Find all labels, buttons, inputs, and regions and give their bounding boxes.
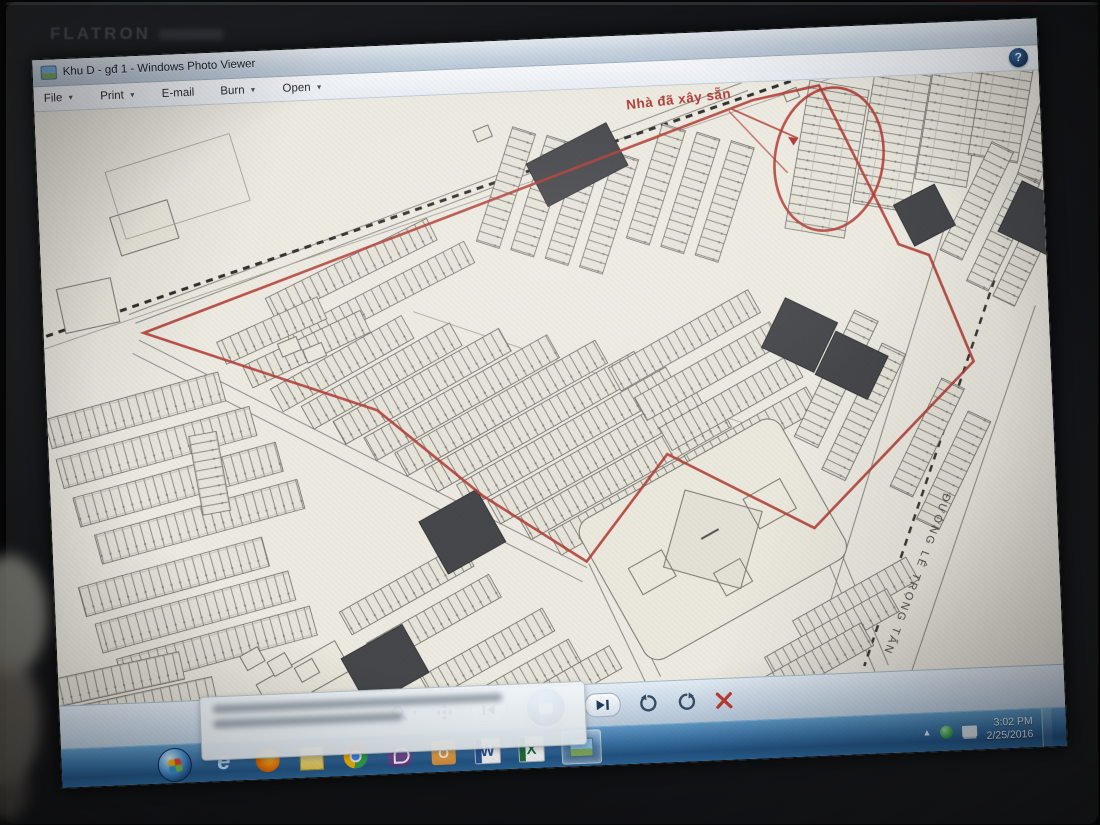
- menu-open[interactable]: Open▼: [282, 81, 323, 95]
- menu-email-label: E-mail: [162, 87, 195, 100]
- taskbar-clock[interactable]: 3:02 PM 2/25/2016: [986, 715, 1034, 743]
- blurred-text-line: [213, 712, 403, 728]
- next-icon: [595, 699, 611, 712]
- chevron-down-icon: ▼: [315, 84, 322, 91]
- menu-burn-label: Burn: [220, 84, 245, 97]
- windows-logo-icon: [167, 757, 182, 772]
- map-image: Nhà đã xây sẵn ĐƯỜNG LÊ TRỌNG TẤN: [34, 70, 1063, 706]
- delete-button[interactable]: [715, 690, 735, 710]
- help-button[interactable]: ?: [1009, 48, 1029, 68]
- clock-date: 2/25/2016: [986, 728, 1033, 743]
- chevron-down-icon: ▼: [129, 92, 136, 99]
- rotate-ccw-button[interactable]: [639, 694, 660, 713]
- planning-map: Nhà đã xây sẵn ĐƯỜNG LÊ TRỌNG TẤN: [34, 70, 1063, 706]
- bezel-sheen: [6, 2, 1098, 5]
- chevron-down-icon: ▼: [67, 94, 74, 101]
- rotate-ccw-icon: [639, 694, 660, 713]
- menu-open-label: Open: [282, 82, 311, 95]
- system-tray: ▲ 3:02 PM 2/25/2016: [922, 708, 1053, 751]
- menu-burn[interactable]: Burn▼: [220, 84, 257, 98]
- network-icon[interactable]: [962, 725, 977, 737]
- screen: Khu D - gđ 1 - Windows Photo Viewer File…: [31, 17, 1068, 789]
- rotate-cw-icon: [677, 692, 698, 711]
- show-desktop-button[interactable]: [1041, 708, 1053, 746]
- rotate-cw-button[interactable]: [677, 692, 698, 711]
- show-hidden-icons-button[interactable]: ▲: [922, 727, 931, 737]
- menu-print-label: Print: [100, 90, 124, 103]
- menu-file-label: File: [44, 92, 63, 105]
- blurred-text-line: [212, 693, 502, 713]
- window-title: Khu D - gđ 1 - Windows Photo Viewer: [62, 58, 255, 78]
- monitor-brand: FLATRON: [50, 24, 223, 44]
- tray-app-icon[interactable]: [940, 725, 954, 739]
- menu-email[interactable]: E-mail: [162, 87, 195, 100]
- chevron-down-icon: ▼: [249, 86, 256, 93]
- start-button[interactable]: [157, 747, 192, 782]
- monitor-model-smudge: [159, 29, 223, 40]
- photo-viewer-window: Khu D - gđ 1 - Windows Photo Viewer File…: [32, 18, 1067, 787]
- next-button[interactable]: [585, 692, 622, 717]
- photo-viewer-icon: [40, 65, 57, 80]
- monitor-brand-text: FLATRON: [50, 24, 151, 43]
- menu-file[interactable]: File▼: [44, 92, 75, 105]
- delete-x-icon: [715, 690, 735, 710]
- monitor-bezel: FLATRON Khu D - gđ 1 - Windows Photo Vie…: [6, 2, 1098, 824]
- menu-print[interactable]: Print▼: [100, 89, 136, 102]
